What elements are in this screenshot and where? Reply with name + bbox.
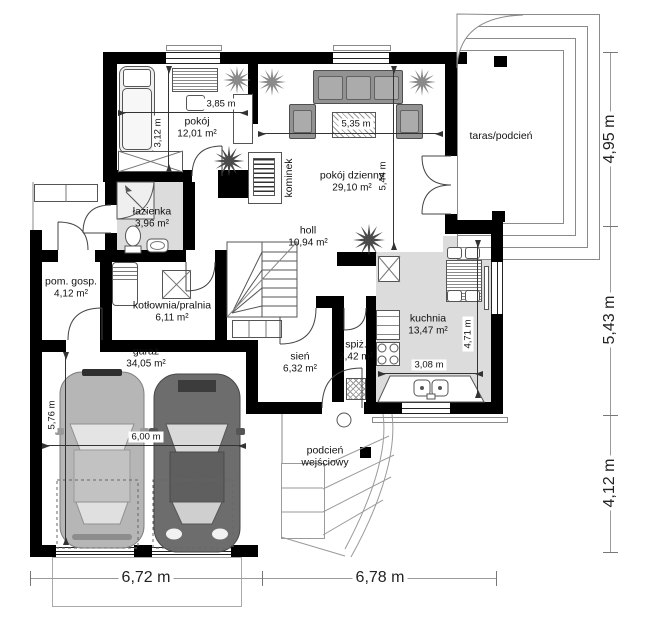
wall-segment	[364, 402, 370, 414]
garage-door	[56, 547, 134, 555]
wall-segment	[100, 262, 112, 352]
dim-line	[393, 66, 394, 250]
room-label-living: pokój dzienny 29,10 m²	[320, 171, 384, 194]
window	[333, 52, 389, 64]
wall-segment	[215, 250, 227, 352]
wall-segment	[231, 545, 258, 557]
dim-label: 3,08 m	[411, 360, 446, 371]
sofa-cushion	[346, 76, 371, 100]
wall-segment	[105, 182, 117, 205]
stove	[376, 342, 400, 366]
wall-segment	[445, 220, 503, 234]
room-label-utility: pom. gosp. 4,12 m²	[45, 277, 97, 300]
wall-segment	[445, 52, 457, 156]
dim-tick	[30, 571, 31, 586]
dim-tick	[603, 226, 618, 227]
dim-tick	[262, 571, 263, 586]
car-light	[55, 369, 149, 548]
armchair-seat	[400, 110, 419, 133]
wall-segment	[258, 402, 322, 414]
wall-segment	[110, 250, 186, 262]
wall-segment	[183, 182, 195, 250]
dim-label: 6,00 m	[128, 432, 163, 443]
dining-chair	[447, 247, 462, 259]
wall-segment	[491, 314, 503, 414]
room-label-terrace: taras/podcień	[469, 131, 532, 143]
dim-line	[168, 66, 169, 172]
room-label-porch: podcień wejściowy	[301, 445, 348, 469]
room-label-kitchen: kuchnia 13,47 m²	[408, 314, 447, 337]
dim-label: 5,35 m	[338, 119, 373, 130]
dim-label-right-bottom: 4,12 m	[601, 456, 619, 511]
wall-segment	[30, 250, 58, 262]
room-label-bathroom: łazienka 3,96 m²	[133, 207, 172, 230]
wardrobe	[118, 151, 183, 172]
wall-segment	[134, 545, 152, 557]
dim-label: 3,85 m	[203, 99, 238, 110]
wall-segment	[30, 230, 42, 557]
window	[491, 262, 503, 314]
sofa-cushion	[318, 76, 343, 100]
wall-segment	[450, 402, 503, 414]
radiator	[484, 266, 489, 310]
wall-segment	[103, 52, 117, 182]
dim-tick	[496, 571, 497, 586]
wall-segment	[337, 252, 376, 266]
dim-label: 5,76 m	[47, 397, 58, 432]
parking-outline	[153, 480, 233, 548]
window-sill	[372, 417, 508, 423]
porch-column	[360, 447, 371, 458]
room-label-vestibule: sień 6,32 m²	[283, 352, 317, 375]
room-label-pokoj: pokój 12,01 m²	[177, 117, 216, 140]
dim-label-bottom-right: 6,78 m	[353, 569, 408, 587]
room-label-fireplace: kominek	[284, 158, 296, 197]
wall-segment	[103, 52, 467, 64]
window	[402, 402, 450, 414]
dim-line-bottom	[30, 578, 497, 579]
dim-tick	[603, 52, 618, 53]
pantry-shelf	[346, 378, 366, 400]
terrace-column	[494, 56, 507, 67]
desk-chair	[186, 95, 205, 111]
sofa-cushion	[374, 76, 399, 100]
room-label-garage: garaż 34,05 m²	[126, 347, 165, 370]
room-label-pantry: spiż. 2,42 m²	[339, 340, 373, 363]
wall-segment	[30, 545, 56, 557]
wall-segment	[491, 234, 503, 262]
fireplace-insert	[253, 158, 275, 196]
parking-outline	[57, 480, 138, 548]
closet	[34, 184, 98, 202]
dim-label: 3,12 m	[153, 115, 164, 150]
car-dark	[149, 374, 245, 552]
wall-segment	[370, 402, 402, 414]
dim-line	[65, 352, 66, 545]
dim-line	[118, 112, 248, 113]
dim-label-bottom-left: 6,72 m	[119, 569, 174, 587]
wall-segment	[95, 250, 112, 262]
vestibule-wardrobe	[232, 320, 282, 338]
wall-segment	[246, 352, 258, 414]
room-label-boiler: kotłownia/pralnia 6,11 m²	[133, 301, 211, 324]
dining-chair	[447, 290, 462, 302]
room-label-hall: holl 10,94 m²	[288, 226, 327, 249]
wall-segment	[246, 296, 280, 308]
window-sill	[166, 45, 222, 51]
dim-line	[477, 240, 478, 398]
armchair-seat	[293, 110, 312, 133]
floor-plan: 3,85 m 3,12 m 5,35 m 5,44 m 3,08 m 4,71 …	[0, 0, 660, 624]
fridge	[378, 256, 400, 282]
window	[166, 52, 220, 64]
wall-segment	[30, 340, 66, 352]
washing-machine	[162, 270, 191, 299]
bed-pillow	[123, 69, 151, 87]
dim-label-right-middle: 5,43 m	[601, 293, 619, 348]
dim-label: 4,71 m	[463, 316, 474, 351]
wall-segment	[218, 170, 252, 198]
kitchen-drawers	[376, 310, 400, 340]
wall-segment	[105, 233, 117, 250]
dim-line	[42, 445, 246, 446]
bed-mattress	[122, 88, 152, 150]
dim-line	[378, 373, 483, 374]
window-sill	[333, 45, 391, 51]
dim-label-right-top: 4,95 m	[601, 112, 619, 167]
dim-line	[258, 133, 443, 134]
entry-step	[281, 463, 325, 539]
wall-segment	[316, 296, 332, 308]
garage-door	[152, 547, 231, 555]
desk	[172, 68, 218, 92]
dim-tick	[603, 415, 618, 416]
dim-tick	[603, 552, 618, 553]
